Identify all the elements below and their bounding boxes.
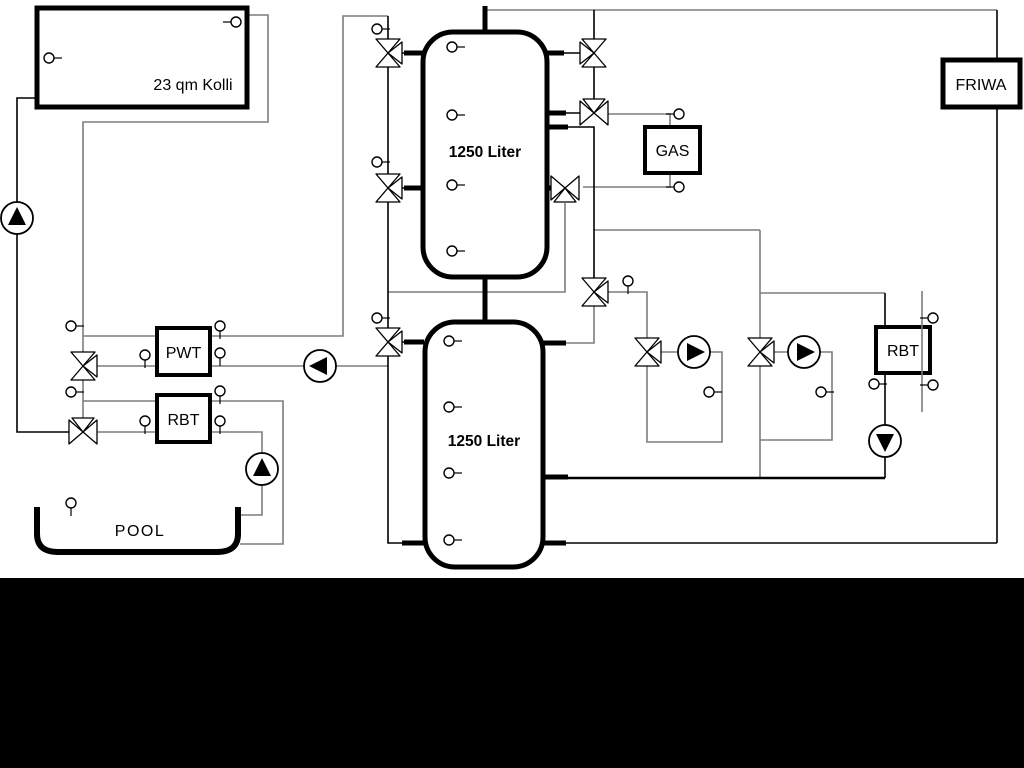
buffer-tank-top-label: 1250 Liter <box>449 144 521 161</box>
temp-sensor-icon <box>674 182 684 192</box>
temp-sensor-icon <box>44 53 54 63</box>
pipe-circuit1-feed <box>608 292 647 338</box>
temp-sensor-icon <box>215 386 225 396</box>
letterbox-bar <box>0 578 1024 768</box>
solar-collector-label: 23 qm Kolli <box>153 77 232 94</box>
pwt-label: PWT <box>166 345 202 362</box>
pipe-solar-supply <box>17 98 69 432</box>
temp-sensor-icon <box>444 468 454 478</box>
buffer-tank-bottom-label: 1250 Liter <box>448 433 520 450</box>
temp-sensor-icon <box>447 110 457 120</box>
temp-sensor-icon <box>816 387 826 397</box>
temp-sensor-icon <box>372 24 382 34</box>
temp-sensor-icon <box>928 380 938 390</box>
temp-sensor-icon <box>66 321 76 331</box>
temp-sensor-icon <box>444 336 454 346</box>
temp-sensor-icon <box>372 157 382 167</box>
pool-label: POOL <box>115 523 165 540</box>
temp-sensor-icon <box>623 276 633 286</box>
temp-sensor-icon <box>140 416 150 426</box>
temp-sensor-icon <box>215 321 225 331</box>
temp-sensor-icon <box>704 387 714 397</box>
temp-sensor-icon <box>447 246 457 256</box>
schematic-canvas: 23 qm Kolli 1250 Liter 1250 Liter PWT RB… <box>0 0 1024 768</box>
temp-sensor-icon <box>231 17 241 27</box>
pipe-tank1-right-port-links <box>563 53 582 113</box>
temp-sensor-icon <box>66 387 76 397</box>
temp-sensor-icon <box>215 348 225 358</box>
rbt-right-label: RBT <box>887 343 919 360</box>
gas-boiler-label: GAS <box>656 143 690 160</box>
temp-sensor-icon <box>140 350 150 360</box>
temp-sensor-icon <box>372 313 382 323</box>
rbt-left-label: RBT <box>168 412 200 429</box>
temp-sensor-icon <box>928 313 938 323</box>
temp-sensor-icon <box>869 379 879 389</box>
temp-sensor-icon <box>215 416 225 426</box>
temp-sensor-icon <box>66 498 76 508</box>
friwa-label: FRIWA <box>956 77 1007 94</box>
pipe-gas-return <box>583 173 670 187</box>
temp-sensor-icon <box>444 535 454 545</box>
pipe-tank2-top-out <box>565 306 594 343</box>
temp-sensor-icon <box>444 402 454 412</box>
heating-schematic: 23 qm Kolli 1250 Liter 1250 Liter PWT RB… <box>0 0 1024 578</box>
temp-sensor-icon <box>447 180 457 190</box>
temp-sensor-icon <box>674 109 684 119</box>
pipe-tank-left-main <box>388 16 403 543</box>
temp-sensor-icon <box>447 42 457 52</box>
